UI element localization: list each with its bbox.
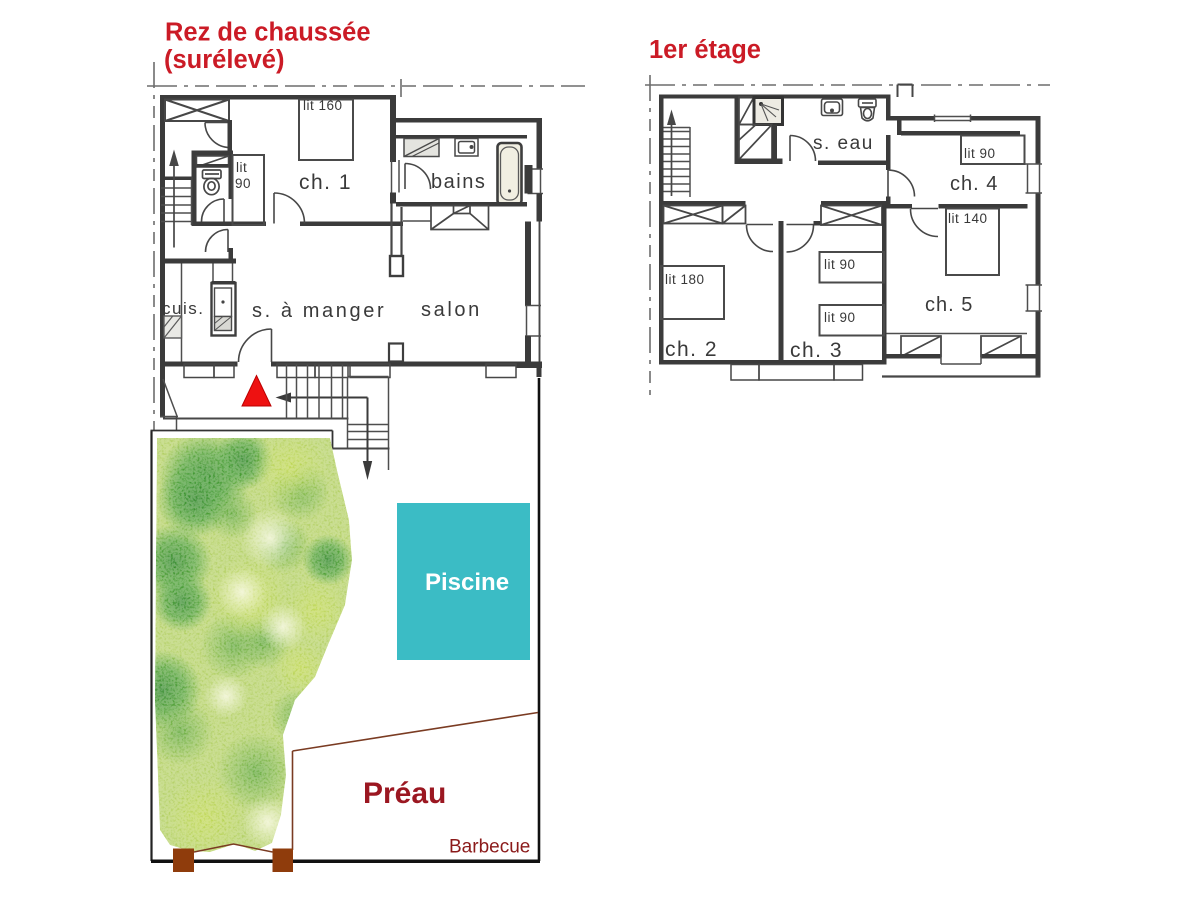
svg-text:s. eau: s. eau bbox=[813, 133, 874, 154]
svg-text:ch. 5: ch. 5 bbox=[925, 294, 973, 316]
svg-text:Barbecue: Barbecue bbox=[449, 837, 530, 858]
svg-text:s. à manger: s. à manger bbox=[252, 300, 386, 322]
svg-text:Piscine: Piscine bbox=[425, 569, 509, 596]
svg-text:lit: lit bbox=[236, 160, 247, 175]
svg-text:lit 140: lit 140 bbox=[948, 211, 988, 226]
svg-text:Rez de chaussée: Rez de chaussée bbox=[165, 19, 371, 47]
svg-text:bains: bains bbox=[431, 171, 486, 193]
svg-text:1er étage: 1er étage bbox=[649, 36, 761, 64]
svg-text:lit 180: lit 180 bbox=[665, 272, 705, 287]
svg-text:salon: salon bbox=[421, 299, 482, 321]
svg-text:ch. 1: ch. 1 bbox=[299, 171, 352, 194]
svg-text:lit 160: lit 160 bbox=[303, 98, 343, 113]
svg-text:lit 90: lit 90 bbox=[964, 146, 996, 161]
svg-text:Préau: Préau bbox=[363, 777, 446, 810]
svg-text:90: 90 bbox=[235, 176, 251, 191]
svg-text:lit 90: lit 90 bbox=[824, 310, 856, 325]
svg-text:ch. 3: ch. 3 bbox=[790, 339, 843, 362]
svg-text:cuis.: cuis. bbox=[162, 299, 204, 318]
svg-text:ch. 4: ch. 4 bbox=[950, 173, 998, 195]
svg-text:(surélevé): (surélevé) bbox=[164, 46, 284, 74]
svg-text:lit 90: lit 90 bbox=[824, 257, 856, 272]
svg-text:ch. 2: ch. 2 bbox=[665, 338, 718, 361]
